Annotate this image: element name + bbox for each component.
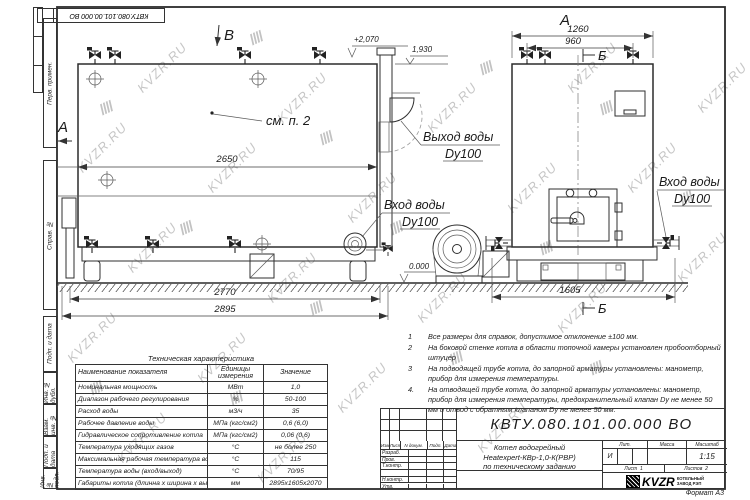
water-outlet-label: Выход воды [423, 130, 493, 144]
tech-col-header: Единицы измерения [208, 365, 264, 382]
drawing-sheet: KVZR.RU KVZR.RU KVZR.RU KVZR.RU KVZR.RU … [0, 0, 750, 500]
change-header: Подп. [428, 441, 445, 449]
see-note-label: см. п. 2 [266, 113, 311, 128]
dim-1605-label: 1605 [559, 285, 581, 296]
role-row: Н.контр. [381, 477, 456, 484]
table-row: Расход воды м3/ч 35 [76, 406, 328, 418]
section-mark-b-bottom: Б [598, 301, 607, 316]
valve-icon [537, 47, 551, 64]
table-cell: не более 250 [264, 442, 328, 454]
boiler-front-view [486, 47, 679, 281]
product-line: Heatexpert-КВр-1,0-К(РВР) [457, 453, 602, 463]
change-header: Дата [444, 441, 456, 449]
lit-value: И [603, 449, 618, 465]
scale-header: Масштаб [687, 441, 727, 449]
note-item: 3 На подводящей трубе котла, до запорной… [408, 364, 724, 384]
kvzr-logo-icon [626, 475, 640, 488]
elevation-2070-label: +2,070 [354, 35, 379, 44]
margin-label-inv-podl: Инв. № подл. [43, 468, 57, 489]
boiler-side-view [57, 47, 422, 281]
company-name-line: ЗАВОД РЭП [677, 482, 704, 487]
table-row: Температура уходящих газов °С не более 2… [76, 442, 328, 454]
title-block: КВТУ.080.101.00.000 ВО Изм Лист N докум.… [380, 408, 725, 489]
note-number: 1 [408, 332, 428, 342]
center-mark-icon [98, 171, 116, 189]
water-inlet-right-label: Вход воды [659, 175, 720, 189]
table-row: Рабочее давление воды МПа (кгс/см2) 0,6 … [76, 418, 328, 430]
valve-icon [237, 47, 251, 64]
ground-hatch [57, 284, 688, 292]
nameplate [615, 91, 645, 116]
valve-icon [625, 47, 639, 64]
empty-cell [456, 471, 602, 490]
note-text: На подводящей трубе котла, до запорной а… [428, 364, 724, 384]
stamp-doc-number: КВТУ.080.101.00.000 ВО [54, 9, 164, 22]
sheet-label: Лист [624, 466, 637, 472]
margin-label-podp-data-1: Подп. и дата [43, 316, 57, 372]
table-cell: Температура уходящих газов [76, 442, 208, 454]
table-cell: °С [208, 442, 264, 454]
tech-characteristics: Техническая характеристика Наименование … [75, 354, 327, 490]
doc-number: КВТУ.080.101.00.000 ВО [456, 409, 726, 441]
valve-icon [87, 47, 101, 64]
lit-header: Лит. [603, 441, 648, 449]
note-text: Все размеры для справок, допустимое откл… [428, 332, 724, 342]
note-text: На боковой стенке котла в области топочн… [428, 343, 724, 363]
margin-label-sprav-no: Справ. № [43, 160, 57, 310]
table-cell: % [208, 394, 264, 406]
dim-960-label: 960 [565, 36, 582, 47]
change-header: Лист [390, 441, 401, 449]
table-cell: 2895х1605х2070 [264, 478, 328, 490]
table-row: Гидравлическое сопротивление котла МПа (… [76, 430, 328, 442]
table-cell: 0,6 (6,0) [264, 418, 328, 430]
role-row [381, 470, 456, 477]
revision-grid [381, 409, 456, 441]
valve-icon [657, 235, 674, 249]
scale-value: 1:15 [687, 449, 727, 465]
water-inlet-dn-label: Dy100 [402, 215, 438, 229]
valve-icon [84, 236, 98, 253]
side-view-dimensions: 2650 2770 2895 В А +2,070 1,930 0.000 [57, 25, 500, 320]
table-cell: м3/ч [208, 406, 264, 418]
sheets-label: Листов [684, 466, 702, 472]
change-header: Изм [381, 441, 390, 449]
water-inlet-right-dn-label: Dy100 [674, 192, 710, 206]
boiler-skid [82, 247, 375, 261]
margin-label-podp-data-2: Подп. и дата [43, 436, 57, 468]
table-cell: МПа (кгс/см2) [208, 418, 264, 430]
table-cell: 35 [264, 406, 328, 418]
margin-mini-grid [33, 7, 43, 93]
role-label: Н.контр. [381, 477, 409, 483]
mass-header: Масса [648, 441, 687, 449]
role-label: Утв. [381, 484, 409, 491]
valve-icon [312, 47, 326, 64]
table-row: Температура воды (вход/выход) °С 70/95 [76, 466, 328, 478]
valve-icon [107, 47, 121, 64]
change-header-row: Изм Лист N докум. Подп. Дата [381, 441, 456, 450]
note-number: 2 [408, 343, 428, 363]
fan-blower [433, 225, 509, 283]
tech-col-header: Наименование показателя [76, 365, 208, 382]
format-label: Формат А3 [648, 490, 724, 497]
table-cell: Габариты котла (длинна х ширина х высота… [76, 478, 208, 490]
table-cell: МВт [208, 382, 264, 394]
tech-table: Наименование показателя Единицы измерени… [75, 364, 328, 490]
dim-1260-label: 1260 [567, 24, 589, 35]
role-row: Разраб. [381, 450, 456, 457]
sheets-value: 2 [705, 466, 708, 472]
table-cell: 1,0 [264, 382, 328, 394]
dim-2650-label: 2650 [215, 154, 238, 165]
change-header: N докум. [401, 441, 428, 449]
title-block-right: Лит. Масса Масштаб И 1:15 Лист 1 Листов … [602, 441, 726, 490]
table-cell: Рабочее давление воды [76, 418, 208, 430]
company-name: КОТЕЛЬНЫЙ ЗАВОД РЭП [677, 477, 704, 486]
water-outlet-dn-label: Dy100 [445, 147, 481, 161]
table-cell: 50-100 [264, 394, 328, 406]
front-view-dimensions: А 1260 960 Б 1605 Б Вход воды Dy100 [492, 12, 725, 316]
role-row: Утв. [381, 484, 456, 491]
section-mark-v: В [224, 27, 234, 44]
valve-icon [491, 237, 508, 251]
table-row: Габариты котла (длинна х ширина х высота… [76, 478, 328, 490]
center-mark-icon [253, 235, 271, 253]
margin-label-inv-dubl: Инв. № дубл. [43, 372, 57, 404]
company-logo: KVZR КОТЕЛЬНЫЙ ЗАВОД РЭП [603, 473, 727, 490]
tech-table-title: Техническая характеристика [75, 354, 327, 364]
tech-col-header: Значение [264, 365, 328, 382]
table-cell: мм [208, 478, 264, 490]
center-mark-icon [249, 70, 267, 88]
inlet-flange [344, 233, 384, 255]
sheet-cell: Лист 1 [603, 465, 665, 473]
table-row: Максимальная рабочая температура воды °С… [76, 454, 328, 466]
dim-2895-label: 2895 [213, 304, 236, 315]
table-cell: Температура воды (вход/выход) [76, 466, 208, 478]
furnace-door [549, 189, 622, 247]
role-label: Пров. [381, 457, 409, 463]
margin-label-perv-primen: Перв. примен. [43, 18, 57, 148]
valve-icon [145, 236, 159, 253]
table-cell: Гидравлическое сопротивление котла [76, 430, 208, 442]
section-mark-a: А [57, 119, 68, 136]
table-cell: °С [208, 454, 264, 466]
rear-header [62, 198, 76, 228]
role-label: Разраб. [381, 450, 409, 456]
note-item: 1 Все размеры для справок, допустимое от… [408, 332, 724, 342]
role-label [381, 470, 409, 476]
kvzr-logo-text: KVZR [642, 475, 675, 489]
mass-value [648, 449, 687, 465]
table-cell: Номинальная мощность [76, 382, 208, 394]
center-mark-icon [86, 70, 104, 88]
table-cell: Диапазон рабочего регулирования [76, 394, 208, 406]
elevation-zero-label: 0.000 [409, 262, 430, 271]
water-inlet-label: Вход воды [384, 198, 445, 212]
note-item: 2 На боковой стенке котла в области топо… [408, 343, 724, 363]
notes-list: 1 Все размеры для справок, допустимое от… [408, 332, 724, 416]
sheets-cell: Листов 2 [665, 465, 727, 473]
margin-label-vzam-inv: Взам. инв. № [43, 404, 57, 436]
note-number: 3 [408, 364, 428, 384]
table-cell: 70/95 [264, 466, 328, 478]
sheet-value: 1 [640, 466, 643, 472]
role-label: Т.контр. [381, 463, 409, 469]
table-cell: Максимальная рабочая температура воды [76, 454, 208, 466]
valve-icon [227, 236, 241, 253]
table-row: Номинальная мощность МВт 1,0 [76, 382, 328, 394]
table-cell: МПа (кгс/см2) [208, 430, 264, 442]
table-row: Диапазон рабочего регулирования % 50-100 [76, 394, 328, 406]
valve-icon [382, 242, 393, 256]
product-description: Котел водогрейный Heatexpert-КВр-1,0-К(Р… [456, 441, 602, 471]
table-cell: °С [208, 466, 264, 478]
table-cell: Расход воды [76, 406, 208, 418]
valve-icon [519, 47, 533, 64]
role-row: Т.контр. [381, 463, 456, 470]
elevation-1930-label: 1,930 [412, 45, 433, 54]
role-row: Пров. [381, 457, 456, 464]
table-cell: 0,06 (0,6) [264, 430, 328, 442]
product-line: Котел водогрейный [457, 443, 602, 453]
section-mark-b-top: Б [598, 48, 607, 63]
table-cell: 115 [264, 454, 328, 466]
